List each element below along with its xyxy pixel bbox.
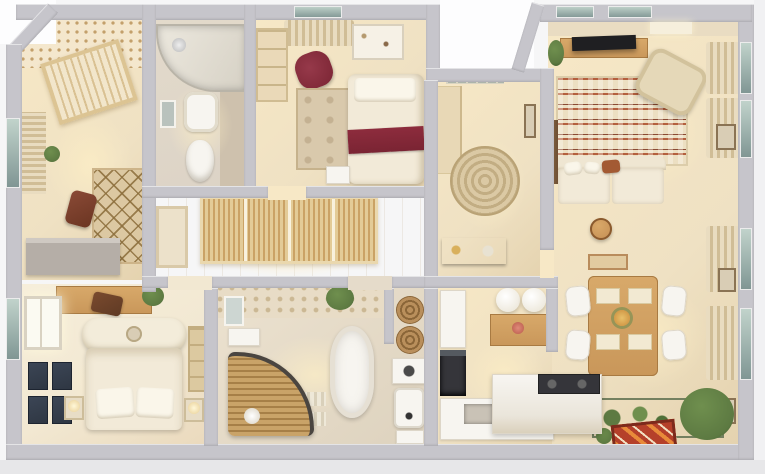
wall-bottom: [6, 444, 754, 460]
wall-bath2-partition: [384, 288, 394, 344]
door-gap-bathroom: [348, 276, 392, 290]
wall-kitchen-top: [424, 276, 558, 288]
wall-hall-bottom-b: [212, 276, 348, 288]
dark-cooktop: [538, 374, 600, 394]
room-kitchen: [0, 0, 765, 474]
wall-bath1-right: [244, 4, 256, 194]
outside-bottom: [0, 460, 765, 474]
door-gap-living: [540, 250, 554, 278]
kitchen-sink: [464, 404, 494, 424]
top-window-living-1: [556, 6, 594, 18]
left-window-nursery: [6, 118, 20, 188]
wall-master-right: [204, 288, 218, 446]
living-skylight: [650, 22, 692, 34]
wall-hall-top-a: [142, 186, 268, 198]
right-window-1: [740, 42, 752, 94]
wall-left: [6, 44, 22, 458]
outside-right: [754, 0, 765, 474]
left-window-master: [6, 298, 20, 360]
wall-notch-bottom: [426, 68, 552, 82]
door-gap-master-bedroom: [168, 276, 212, 290]
door-gap-guest-bedroom: [268, 186, 306, 200]
right-window-2: [740, 100, 752, 158]
wall-kitchen-left: [424, 288, 438, 446]
wall-hall-top-b: [306, 186, 438, 198]
floor-plan-render: [0, 0, 765, 474]
fridge-column: [440, 290, 466, 348]
wall-nursery-right: [142, 4, 156, 292]
cabinet-flower: [512, 322, 524, 334]
wall-hall-bottom-a: [142, 276, 168, 288]
wall-top-left-section: [16, 4, 440, 20]
pendant-dome-lamp-1: [496, 288, 520, 312]
top-window-living-2: [608, 6, 652, 18]
right-window-3: [740, 228, 752, 290]
wall-entry-left: [424, 80, 438, 290]
wall-entry-right: [540, 68, 554, 250]
oven: [440, 350, 466, 396]
top-window-guest: [294, 6, 342, 18]
pendant-dome-lamp-2: [522, 288, 546, 312]
right-window-4: [740, 308, 752, 380]
wall-dining-left: [546, 288, 558, 352]
